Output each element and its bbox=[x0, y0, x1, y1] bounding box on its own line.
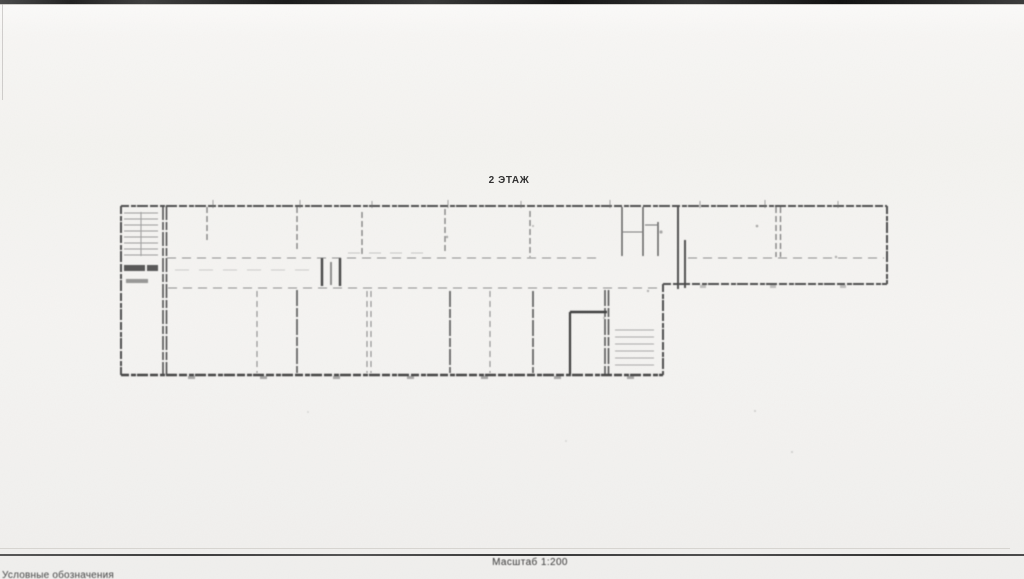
footer-divider bbox=[0, 554, 1024, 556]
legend-label: Условные обозначения bbox=[2, 570, 202, 579]
floor-plan-drawing bbox=[0, 0, 1024, 579]
scanned-page: 2 ЭТАЖ bbox=[0, 0, 1024, 579]
footer-divider-faint bbox=[0, 548, 1010, 549]
paper-noise-overlay bbox=[0, 0, 1024, 579]
scale-label: Масштаб 1:200 bbox=[430, 557, 630, 568]
